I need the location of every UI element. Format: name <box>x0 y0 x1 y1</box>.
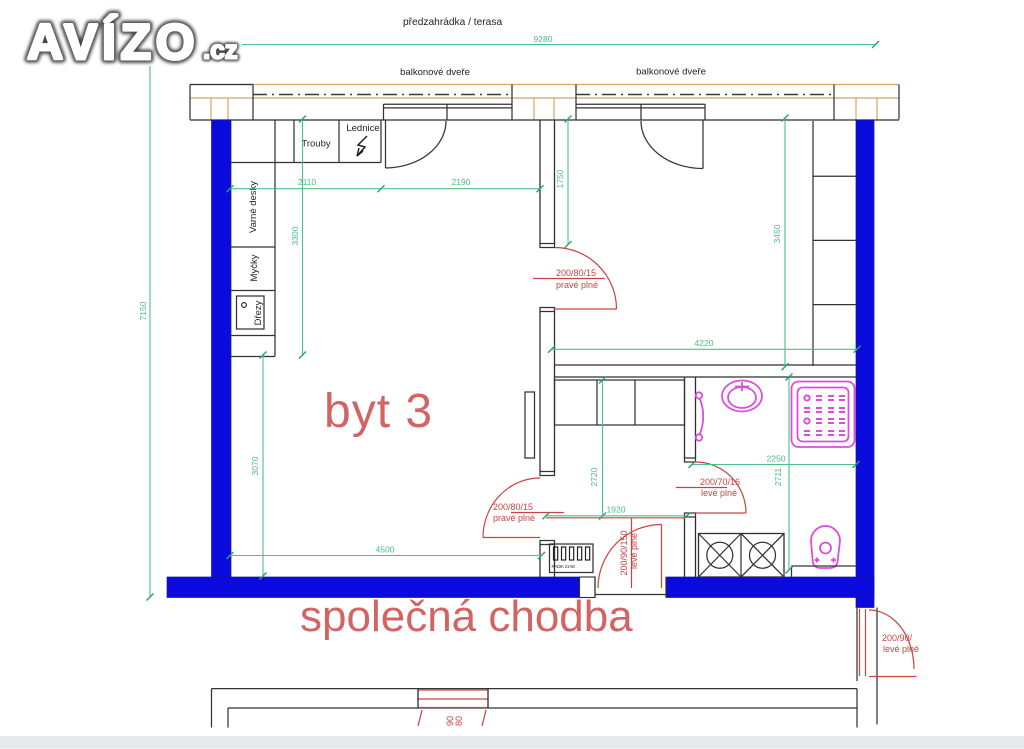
svg-text:2250: 2250 <box>767 454 786 464</box>
svg-text:.cz: .cz <box>203 35 238 65</box>
svg-text:1920: 1920 <box>607 505 626 515</box>
svg-text:společná chodba: společná chodba <box>300 592 633 641</box>
svg-text:7150: 7150 <box>138 301 148 320</box>
svg-text:balkonové dveře: balkonové dveře <box>400 67 470 78</box>
svg-text:1750: 1750 <box>555 169 565 188</box>
svg-text:levé plné: levé plné <box>883 644 919 654</box>
svg-text:pravé plné: pravé plné <box>556 280 598 290</box>
svg-text:Trouby: Trouby <box>301 139 330 150</box>
svg-text:2711: 2711 <box>773 468 783 487</box>
svg-text:200/90/150: 200/90/150 <box>619 530 629 575</box>
svg-text:200/80/15: 200/80/15 <box>556 268 596 278</box>
svg-text:2720: 2720 <box>589 467 599 486</box>
svg-text:Myčky: Myčky <box>249 254 260 281</box>
svg-text:2190: 2190 <box>452 177 471 187</box>
svg-text:levé plné: levé plné <box>701 488 737 498</box>
svg-text:AVÍZO: AVÍZO <box>27 14 199 70</box>
svg-text:3450: 3450 <box>772 224 782 243</box>
svg-text:pravé plné: pravé plné <box>493 513 535 523</box>
svg-text:9280: 9280 <box>534 34 553 44</box>
svg-text:balkonové dveře: balkonové dveře <box>636 67 706 78</box>
svg-text:4220: 4220 <box>695 338 714 348</box>
svg-text:3070: 3070 <box>250 456 260 475</box>
svg-text:levé plné: levé plné <box>629 533 639 569</box>
svg-text:4500: 4500 <box>376 545 395 555</box>
svg-text:200/90/: 200/90/ <box>882 633 913 643</box>
svg-text:RADIK 21-50: RADIK 21-50 <box>552 564 576 569</box>
svg-text:předzahrádka / terasa: předzahrádka / terasa <box>403 17 502 28</box>
svg-text:3300: 3300 <box>290 226 300 245</box>
svg-text:Lednice: Lednice <box>346 123 379 134</box>
svg-text:2110: 2110 <box>298 177 317 187</box>
svg-text:80: 80 <box>454 716 464 726</box>
svg-text:Dřezy: Dřezy <box>253 300 264 325</box>
svg-text:200/70/16: 200/70/16 <box>700 477 740 487</box>
svg-text:200/80/15: 200/80/15 <box>493 502 533 512</box>
svg-text:byt 3: byt 3 <box>324 385 433 438</box>
